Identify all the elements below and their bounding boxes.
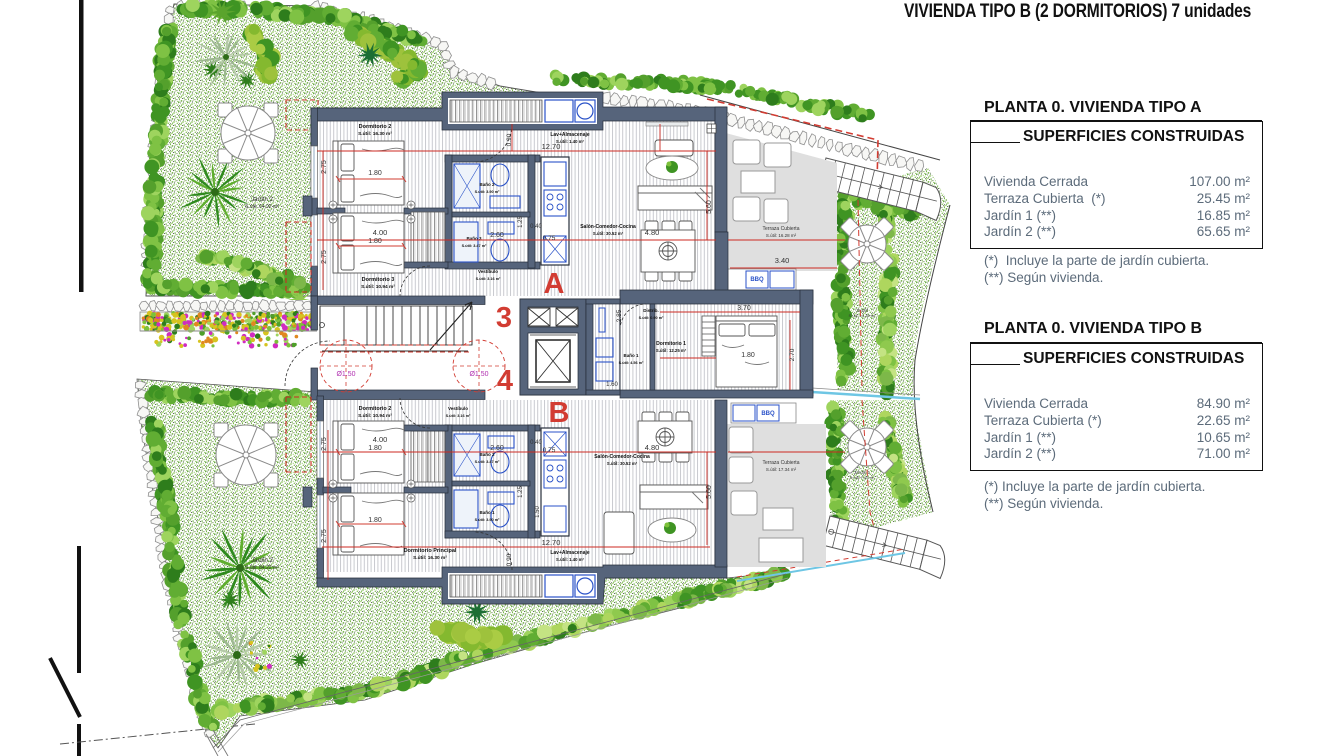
svg-text:S.útil: 30.52 m²: S.útil: 30.52 m²: [593, 231, 624, 236]
svg-text:Dormitorio 2: Dormitorio 2: [359, 406, 392, 412]
svg-text:4.80: 4.80: [645, 228, 660, 237]
svg-text:5.60: 5.60: [706, 485, 713, 499]
svg-text:S.útil: 84.22 m²: S.útil: 84.22 m²: [245, 565, 279, 571]
svg-text:Terraza Cubierta: Terraza Cubierta: [763, 226, 800, 232]
svg-text:4.80: 4.80: [645, 443, 660, 452]
svg-text:Salón-Comedor-Cocina: Salón-Comedor-Cocina: [580, 224, 636, 230]
svg-text:S.útil: 17.34 m²: S.útil: 17.34 m²: [766, 467, 797, 472]
svg-text:BBQ: BBQ: [750, 277, 764, 283]
svg-text:2.60: 2.60: [490, 445, 504, 452]
svg-text:A: A: [544, 268, 565, 300]
svg-text:Baño 2: Baño 2: [479, 182, 495, 187]
svg-text:3.40: 3.40: [775, 256, 790, 265]
svg-text:3: 3: [496, 302, 512, 334]
svg-text:S.útil: 10.94 m²: S.útil: 10.94 m²: [358, 413, 392, 419]
svg-text:Salón-Comedor-Cocina: Salón-Comedor-Cocina: [594, 454, 650, 460]
svg-text:S.útil: 1.40 m²: S.útil: 1.40 m²: [556, 557, 585, 562]
svg-text:Dormitorio 1: Dormitorio 1: [656, 341, 686, 347]
svg-text:1.25: 1.25: [518, 216, 524, 228]
svg-text:S.útil: 3.90 m²: S.útil: 3.90 m²: [475, 190, 500, 194]
svg-text:S.útil: 3.90 m²: S.útil: 3.90 m²: [475, 518, 500, 522]
svg-text:Baño 2: Baño 2: [479, 452, 495, 457]
svg-text:1.80: 1.80: [368, 238, 382, 245]
svg-text:Baño 1: Baño 1: [479, 510, 495, 515]
svg-text:1.60: 1.60: [606, 382, 618, 388]
svg-text:S.útil: 12.25 m²: S.útil: 12.25 m²: [656, 348, 687, 353]
svg-text:S.útil: 16.30 m²: S.útil: 16.30 m²: [358, 131, 392, 137]
svg-text:Baño 1: Baño 1: [623, 353, 639, 358]
svg-text:BBQ: BBQ: [761, 411, 775, 417]
svg-text:2.75: 2.75: [321, 160, 328, 174]
svg-text:S.útil: 30.52 m²: S.útil: 30.52 m²: [607, 461, 638, 466]
svg-text:4.00: 4.00: [373, 228, 388, 237]
svg-text:S.útil: 10.94 m²: S.útil: 10.94 m²: [361, 284, 395, 290]
svg-text:S.útil: 3.47 m²: S.útil: 3.47 m²: [475, 460, 500, 464]
svg-text:4: 4: [497, 365, 513, 397]
svg-text:S.útil: 64.92 m²: S.útil: 64.92 m²: [245, 204, 279, 210]
svg-text:1.80: 1.80: [368, 517, 382, 524]
svg-text:S.útil: 3.16 m²: S.útil: 3.16 m²: [446, 414, 471, 418]
svg-text:4.00: 4.00: [373, 435, 388, 444]
svg-text:S.útil: 3.47 m²: S.útil: 3.47 m²: [462, 244, 487, 248]
svg-text:Dormitorio 2: Dormitorio 2: [359, 124, 392, 130]
svg-text:Vestíbulo: Vestíbulo: [478, 269, 498, 274]
svg-text:S.útil: 16.28 m²: S.útil: 16.28 m²: [766, 233, 797, 238]
svg-text:1.80: 1.80: [741, 352, 755, 359]
svg-text:S.útil: 7.65 m²: S.útil: 7.65 m²: [850, 475, 875, 480]
svg-text:1.25: 1.25: [518, 486, 524, 498]
svg-text:0.75: 0.75: [543, 235, 556, 242]
svg-text:0.40: 0.40: [530, 440, 542, 446]
svg-text:5.60: 5.60: [706, 200, 713, 214]
svg-text:Dormitorio Principal: Dormitorio Principal: [404, 548, 457, 554]
svg-text:S.útil: 16.30 m²: S.útil: 16.30 m²: [413, 555, 447, 561]
svg-text:S.útil: 3.16 m²: S.útil: 3.16 m²: [476, 277, 501, 281]
svg-text:1.80: 1.80: [368, 445, 382, 452]
svg-text:0.90: 0.90: [506, 133, 513, 146]
svg-text:Jardín 2: Jardín 2: [251, 197, 273, 203]
svg-text:S.útil: 14.39 m²: S.útil: 14.39 m²: [849, 313, 877, 318]
svg-text:2.70: 2.70: [789, 348, 796, 361]
svg-text:2.75: 2.75: [321, 529, 328, 543]
svg-text:Dormitorio 3: Dormitorio 3: [362, 277, 395, 283]
svg-text:Jardín 2: Jardín 2: [251, 558, 273, 564]
svg-text:Lav+Almacenaje: Lav+Almacenaje: [550, 132, 590, 138]
svg-text:12.70: 12.70: [542, 142, 561, 151]
svg-text:0.90: 0.90: [506, 553, 513, 566]
svg-text:S.útil: 0.90 m²: S.útil: 0.90 m²: [639, 316, 664, 320]
svg-text:Vestíbulo: Vestíbulo: [448, 406, 468, 411]
svg-text:2.60: 2.60: [490, 232, 504, 239]
svg-text:S.útil: 4.56 m²: S.útil: 4.56 m²: [619, 361, 644, 365]
svg-text:0.75: 0.75: [543, 447, 556, 454]
svg-text:0.40: 0.40: [530, 224, 542, 230]
svg-text:1.80: 1.80: [368, 170, 382, 177]
svg-text:2.75: 2.75: [321, 437, 328, 451]
svg-text:Ø1.50: Ø1.50: [336, 371, 355, 378]
svg-text:12.70: 12.70: [542, 538, 561, 547]
svg-text:2.75: 2.75: [321, 250, 328, 264]
svg-text:1.50: 1.50: [535, 506, 541, 518]
svg-text:2.85: 2.85: [616, 309, 623, 322]
svg-text:Lav+Almacenaje: Lav+Almacenaje: [550, 550, 590, 556]
svg-text:Terraza Cubierta: Terraza Cubierta: [763, 460, 800, 466]
svg-text:Ø1.50: Ø1.50: [469, 371, 488, 378]
svg-text:B: B: [549, 397, 570, 429]
svg-text:Distrib.: Distrib.: [643, 308, 659, 313]
svg-text:3.70: 3.70: [737, 305, 751, 312]
